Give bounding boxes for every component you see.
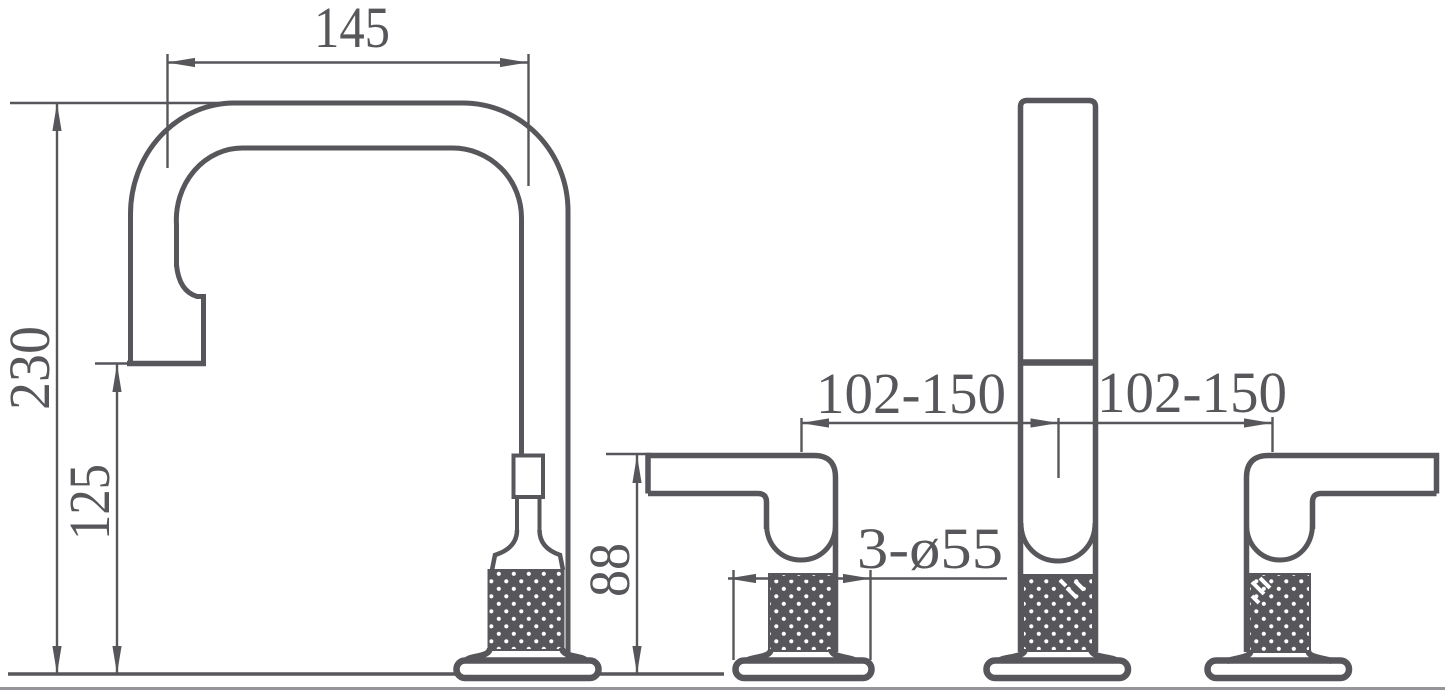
dimension-spout-reach: 145 bbox=[167, 0, 529, 186]
arrowhead bbox=[52, 646, 61, 674]
spout bbox=[127, 103, 599, 678]
arrowhead bbox=[632, 646, 641, 674]
spout-valve-upper bbox=[514, 456, 544, 498]
handle-right-collar-arc bbox=[1247, 524, 1313, 560]
arrowhead bbox=[112, 364, 121, 392]
arrowhead bbox=[728, 574, 756, 583]
spout-shoulder bbox=[492, 530, 563, 570]
handle-left-collar-arc bbox=[767, 524, 836, 560]
handle-left bbox=[648, 456, 872, 679]
spout-inner-outline bbox=[176, 148, 521, 454]
handle-left-lever-underside bbox=[648, 494, 767, 530]
sprayer-collar-arc bbox=[1021, 523, 1095, 561]
dim-label-right-hole-spacing: 102-150 bbox=[1097, 360, 1287, 425]
dimension-handle-height: 88 bbox=[577, 454, 651, 674]
handle-left-base-plate bbox=[736, 661, 872, 679]
spout-valve-lower bbox=[517, 497, 540, 531]
dim-label-left-hole-spacing: 102-150 bbox=[816, 361, 1006, 426]
arrowhead bbox=[632, 455, 641, 483]
sprayer-body-outline bbox=[1021, 101, 1096, 653]
arrowhead bbox=[1031, 418, 1059, 427]
drawing-canvas: 145 230 125 88 102-150 102-150 bbox=[0, 0, 1445, 692]
sprayer-base-plate bbox=[987, 661, 1129, 679]
arrowhead bbox=[500, 58, 528, 67]
faucet-dimension-drawing: 145 230 125 88 102-150 102-150 bbox=[0, 0, 1445, 692]
handle-left-knurled-nut bbox=[769, 574, 834, 651]
dim-label-outlet-height: 125 bbox=[57, 464, 122, 540]
spout-base-plate bbox=[457, 661, 599, 679]
handle-right bbox=[1208, 456, 1437, 679]
arrowhead bbox=[112, 646, 121, 674]
spout-outlet-profile bbox=[177, 265, 204, 362]
arrowhead bbox=[167, 58, 195, 67]
dim-label-hole-diameter: 3-ø55 bbox=[857, 516, 1003, 581]
handle-right-lever-underside bbox=[1313, 494, 1437, 530]
spout-knurled-nut bbox=[489, 570, 564, 650]
dim-label-handle-height: 88 bbox=[577, 543, 642, 597]
arrowhead bbox=[52, 103, 61, 131]
dim-label-spout-reach: 145 bbox=[314, 0, 390, 60]
dimension-outlet-height: 125 bbox=[57, 364, 130, 675]
dim-label-spout-height: 230 bbox=[0, 326, 62, 410]
